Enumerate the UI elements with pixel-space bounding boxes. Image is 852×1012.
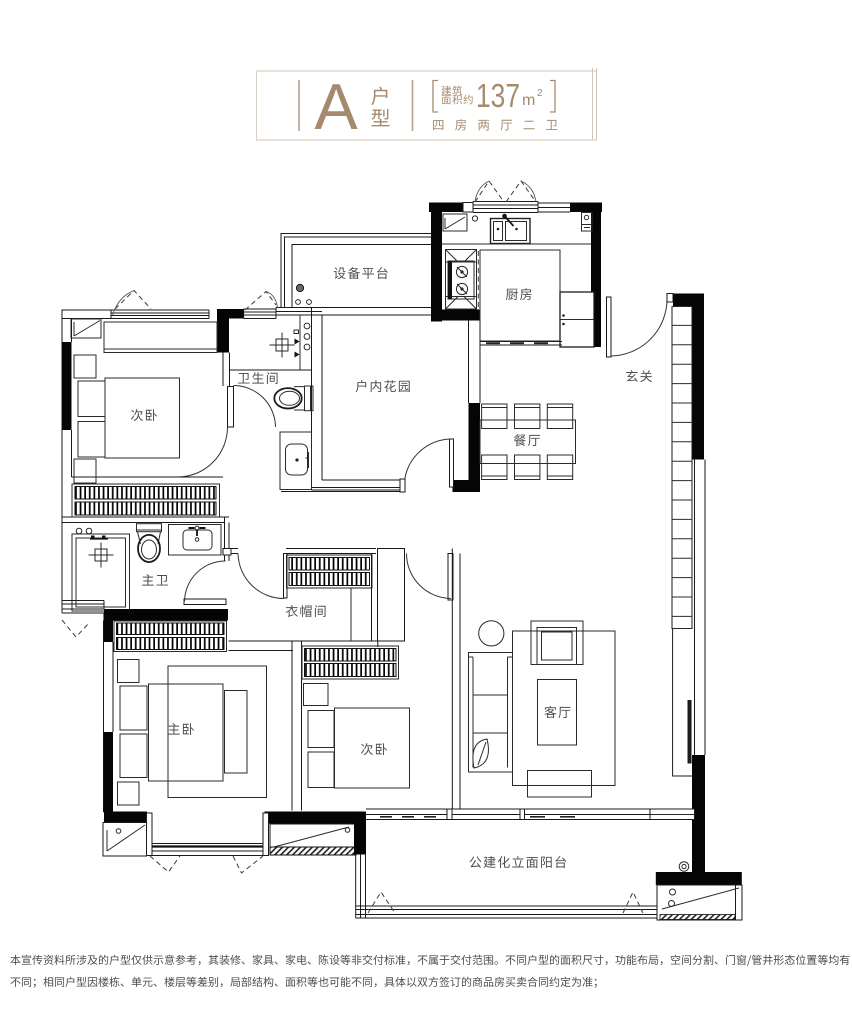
svg-text:A: A [314,70,358,143]
svg-text:m: m [522,92,535,109]
svg-text:2: 2 [537,88,543,99]
svg-text:137: 137 [476,77,520,114]
